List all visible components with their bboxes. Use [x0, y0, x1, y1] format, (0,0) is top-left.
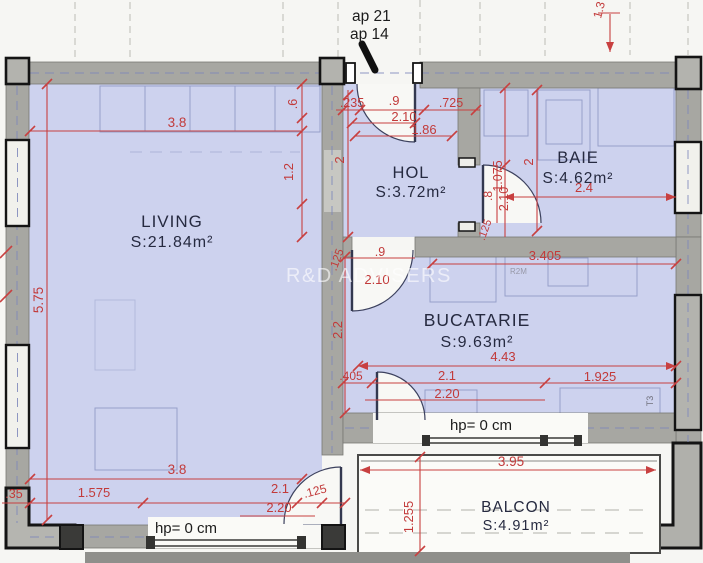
dim-bottom-a: 1.575	[78, 485, 111, 500]
dim-living-right-a: .6	[286, 99, 300, 109]
living-name: LIVING	[141, 212, 203, 231]
dim-living-right-b: 1.2	[281, 163, 296, 181]
dim-kitchen-left: 2.2	[330, 321, 345, 339]
floorplan-page: .235 .9 .725 2.10 1.86 3.8 .6 1.2 5.75 2…	[0, 0, 703, 563]
dim-hol-door-w: .9	[375, 245, 385, 259]
dim-balcony-d: 1.255	[401, 501, 416, 534]
living-floor	[29, 84, 322, 525]
column-top-right	[676, 57, 701, 89]
entry-jamb-left	[346, 63, 355, 83]
pier-bottom-b	[322, 525, 345, 549]
dim-living-left: 5.75	[31, 287, 46, 313]
hol-name: HOL	[393, 164, 430, 182]
dim-baie-door-h: 2.10	[497, 187, 511, 211]
dim-baie-left: 2	[521, 158, 536, 165]
dim-entry-c: .725	[439, 96, 463, 110]
baie-area: S:4.62m²	[543, 170, 614, 187]
baie-jamb-top	[459, 158, 475, 167]
dim-kitchen-open-w: 2.1	[438, 368, 456, 383]
dim-living-bottom: 3.8	[168, 462, 187, 477]
living-area: S:21.84m²	[131, 234, 214, 251]
dim-living-top: 3.8	[168, 115, 187, 130]
dim-entry-b: .9	[389, 93, 400, 108]
dim-entry-clear: 1.86	[411, 122, 436, 137]
hol-area: S:3.72m²	[376, 184, 447, 201]
wall-top-right	[420, 62, 676, 88]
dim-kitchen-top: 3.405	[529, 248, 562, 263]
bucatarie-area: S:9.63m²	[441, 334, 514, 351]
baie-jamb-bottom	[459, 222, 475, 231]
column-top-left	[6, 58, 29, 84]
dim-bottom-win2: 2.20	[266, 500, 291, 515]
floorplan-svg: .235 .9 .725 2.10 1.86 3.8 .6 1.2 5.75 2…	[0, 0, 703, 563]
dim-axis-right: 1.3	[590, 0, 608, 20]
entrance-arrow	[362, 44, 375, 70]
ground-band	[85, 552, 630, 563]
unit-note-line1: ap 21	[352, 8, 391, 25]
watermark: R&D ADVISERS	[286, 265, 452, 287]
parapet-living-label: hp= 0 cm	[155, 520, 217, 537]
door-code-label: T3	[645, 396, 655, 407]
dim-bottom-off: .35	[5, 487, 22, 501]
balcon-area: S:4.91m²	[483, 518, 550, 534]
parapet-kitchen-label: hp= 0 cm	[450, 417, 512, 434]
baie-name: BAIE	[557, 149, 599, 167]
bucatarie-name: BUCATARIE	[424, 310, 531, 330]
entry-jamb-right	[413, 63, 422, 83]
dim-kitchen-open-w2: 2.20	[434, 386, 459, 401]
baie-door-floor	[458, 165, 480, 223]
furniture-code-label: R2M	[510, 267, 527, 276]
balcon-name: BALCON	[481, 499, 551, 516]
dim-entry-a: .235	[340, 96, 364, 110]
dim-kitchen-door-off: .405	[339, 369, 363, 383]
dim-bottom-win: 2.1	[271, 481, 289, 496]
dim-kitchen-width: 4.43	[490, 349, 515, 364]
dim-balcony-w: 3.95	[498, 454, 524, 469]
pier-bottom-a	[60, 525, 83, 549]
dim-baie-door-w: .8	[481, 191, 495, 201]
unit-note-line2: ap 14	[350, 26, 389, 43]
column-entry	[320, 58, 344, 84]
dim-kitchen-right: 1.925	[584, 369, 617, 384]
dim-hol-left: 2	[332, 156, 347, 163]
